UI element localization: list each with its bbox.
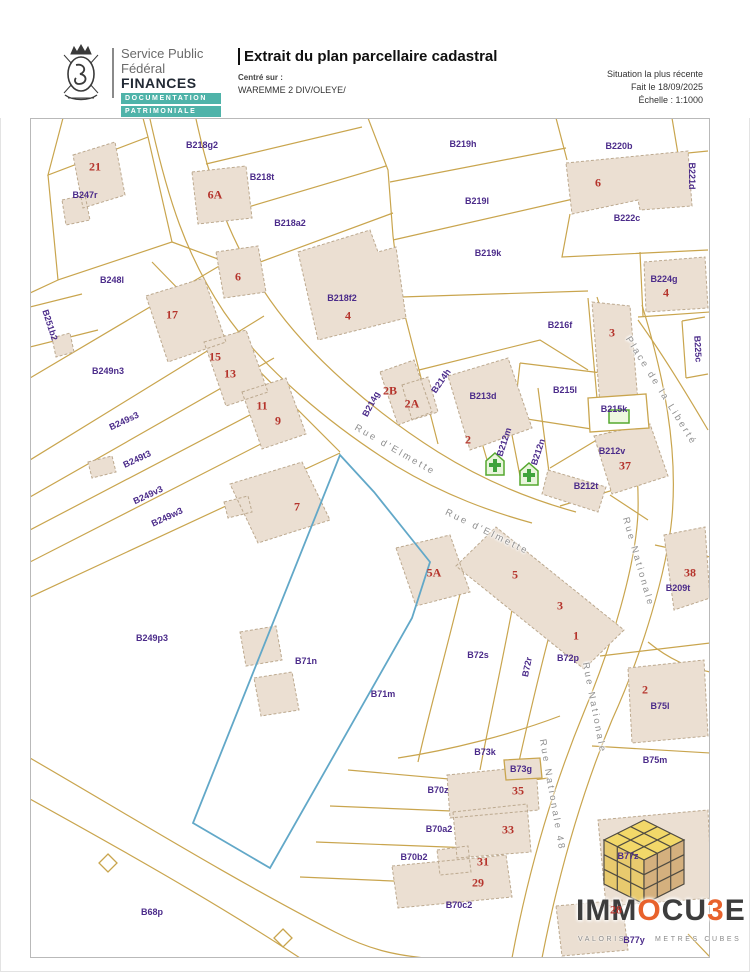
header-divider xyxy=(112,48,114,98)
badge-documentation: DOCUMENTATION xyxy=(121,93,221,104)
buildings xyxy=(52,142,712,956)
meta-scale: Échelle : 1:1000 xyxy=(607,94,703,107)
page-title: Extrait du plan parcellaire cadastral xyxy=(238,48,497,65)
org-line-1: Service Public xyxy=(121,46,203,61)
survey-diamond-markers xyxy=(99,854,292,947)
org-line-3: FINANCES xyxy=(121,76,203,91)
belgian-coat-of-arms-logo xyxy=(56,42,106,106)
centered-on-value: WAREMME 2 DIV/OLEYE/ xyxy=(238,85,497,95)
meta-situation: Situation la plus récente xyxy=(607,68,703,81)
title-block: Extrait du plan parcellaire cadastral Ce… xyxy=(238,48,497,95)
green-house-cross-icon xyxy=(486,453,504,475)
green-square-icon xyxy=(609,410,629,423)
green-house-cross-icon xyxy=(520,463,538,485)
document-header: Service Public Fédéral FINANCES DOCUMENT… xyxy=(0,0,750,118)
org-badges: DOCUMENTATION PATRIMONIALE xyxy=(121,93,221,119)
road-bottom-left-edges xyxy=(30,758,425,958)
organisation-name: Service Public Fédéral FINANCES xyxy=(121,46,203,91)
cadastral-map xyxy=(0,0,750,972)
cadastral-extract-page: { "header": { "logo": { "emblem": "belgi… xyxy=(0,0,750,972)
parcel-box-B73g xyxy=(504,758,542,780)
centered-on-label: Centré sur : xyxy=(238,73,497,82)
badge-patrimoniale: PATRIMONIALE xyxy=(121,106,221,117)
map-meta: Situation la plus récente Fait le 18/09/… xyxy=(607,68,703,107)
meta-date: Fait le 18/09/2025 xyxy=(607,81,703,94)
org-line-2: Fédéral xyxy=(121,61,203,76)
